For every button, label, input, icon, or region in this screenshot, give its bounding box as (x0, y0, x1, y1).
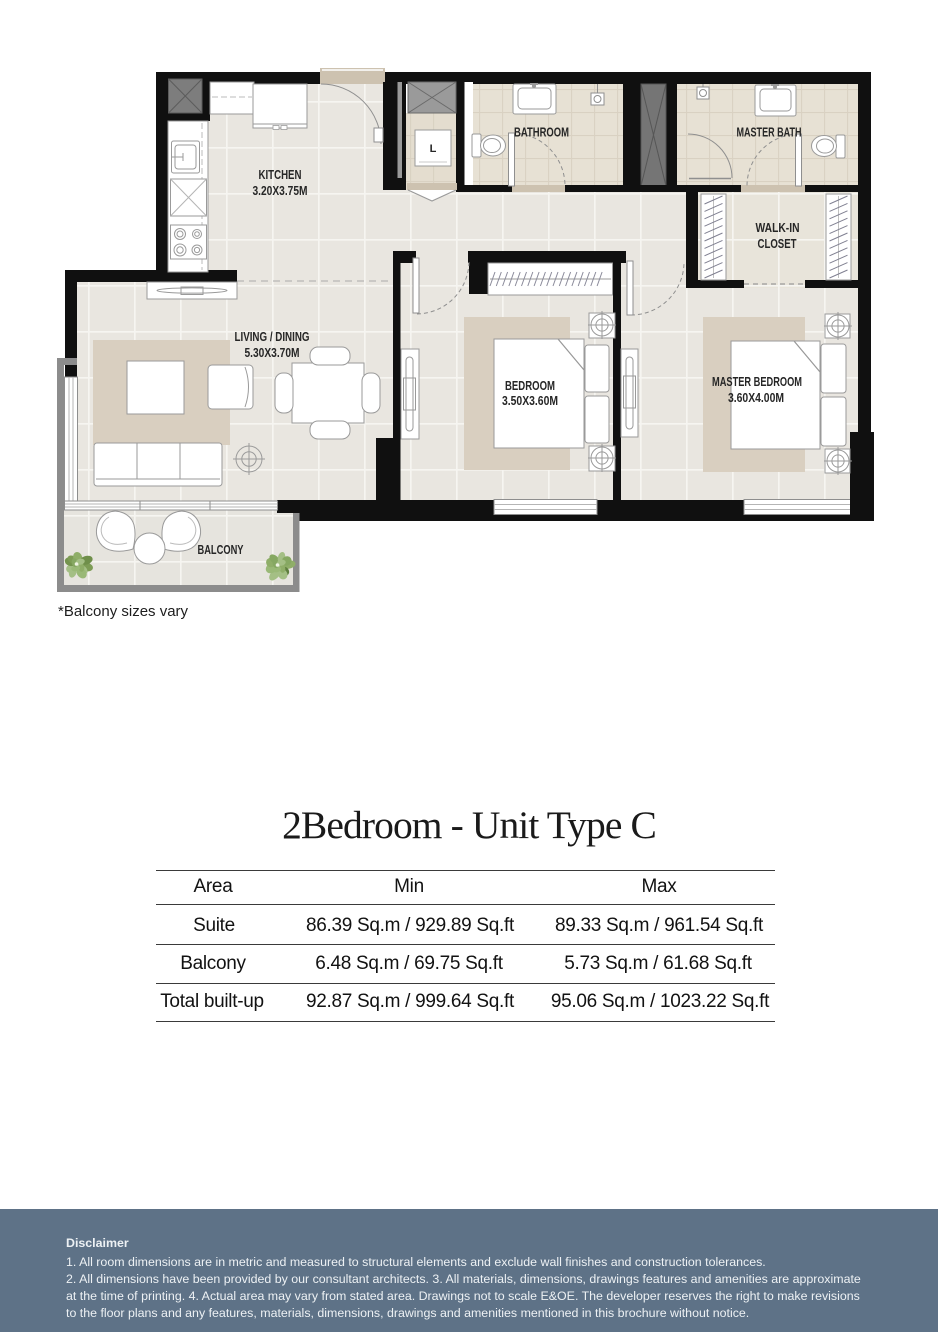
svg-text:*Balcony sizes vary: *Balcony sizes vary (58, 603, 189, 620)
svg-text:L: L (430, 143, 437, 155)
svg-text:3.60X4.00M: 3.60X4.00M (728, 390, 784, 405)
svg-text:3.20X3.75M: 3.20X3.75M (253, 183, 308, 198)
svg-text:CLOSET: CLOSET (758, 236, 797, 251)
svg-text:BATHROOM: BATHROOM (514, 125, 569, 140)
svg-text:BEDROOM: BEDROOM (505, 378, 555, 393)
svg-text:3.50X3.60M: 3.50X3.60M (502, 393, 558, 408)
svg-text:MASTER BEDROOM: MASTER BEDROOM (712, 374, 802, 389)
svg-text:KITCHEN: KITCHEN (259, 167, 302, 182)
svg-text:5.30X3.70M: 5.30X3.70M (245, 345, 300, 360)
svg-text:WALK-IN: WALK-IN (756, 220, 800, 235)
svg-text:MASTER BATH: MASTER BATH (737, 125, 802, 140)
svg-text:LIVING / DINING: LIVING / DINING (235, 329, 310, 344)
svg-text:BALCONY: BALCONY (198, 542, 244, 557)
